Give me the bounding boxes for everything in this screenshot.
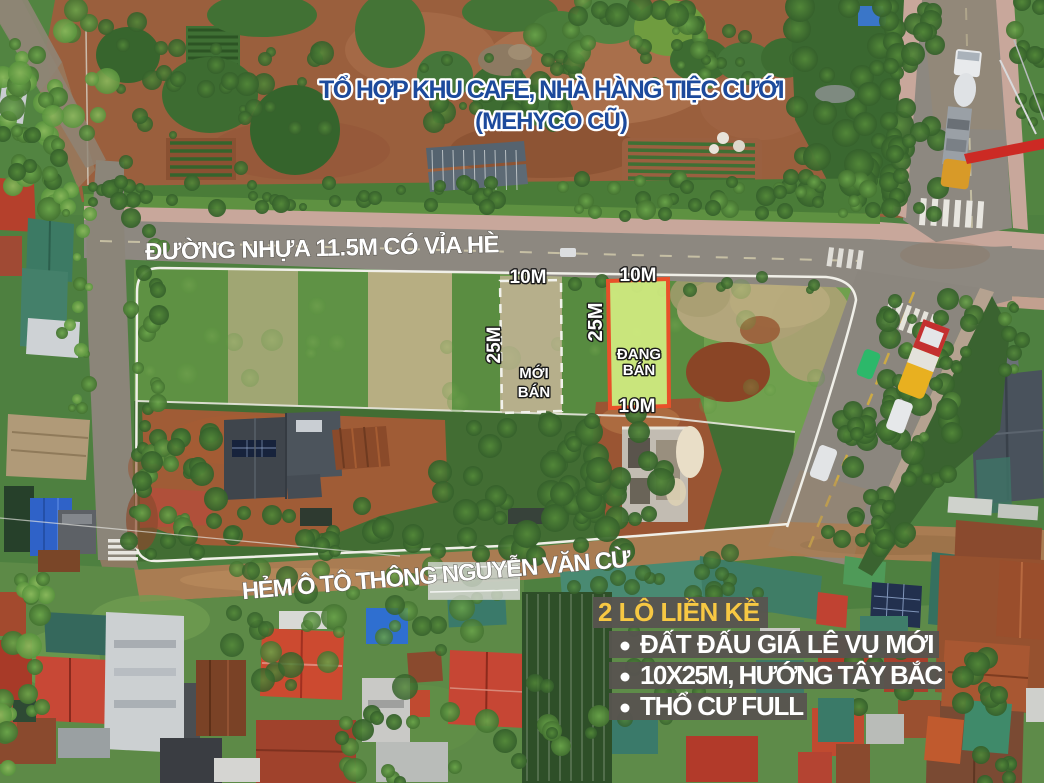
svg-text:10X25M, HƯỚNG TÂY BẮC: 10X25M, HƯỚNG TÂY BẮC (640, 660, 943, 690)
svg-text:ĐẤT ĐẤU GIÁ LÊ VỤ MỚI: ĐẤT ĐẤU GIÁ LÊ VỤ MỚI (640, 629, 934, 659)
svg-text:BÁN: BÁN (623, 362, 656, 379)
svg-text:MỚI: MỚI (519, 364, 548, 382)
svg-text:25M: 25M (585, 303, 607, 342)
svg-text:(MEHYCO CŨ): (MEHYCO CŨ) (475, 107, 627, 135)
svg-text:25M: 25M (484, 327, 505, 364)
svg-text:TỔ HỢP KHU CAFE, NHÀ HÀNG TIỆC: TỔ HỢP KHU CAFE, NHÀ HÀNG TIỆC CƯỚI (319, 74, 784, 104)
svg-text:10M: 10M (510, 267, 547, 288)
svg-text:10M: 10M (620, 265, 657, 286)
svg-text:ĐANG: ĐANG (617, 346, 661, 363)
svg-text:10M: 10M (619, 396, 656, 417)
svg-text:THỔ CƯ FULL: THỔ CƯ FULL (640, 691, 804, 721)
svg-text:2 LÔ LIỀN KỀ: 2 LÔ LIỀN KỀ (598, 597, 760, 627)
svg-text:BÁN: BÁN (518, 384, 551, 401)
